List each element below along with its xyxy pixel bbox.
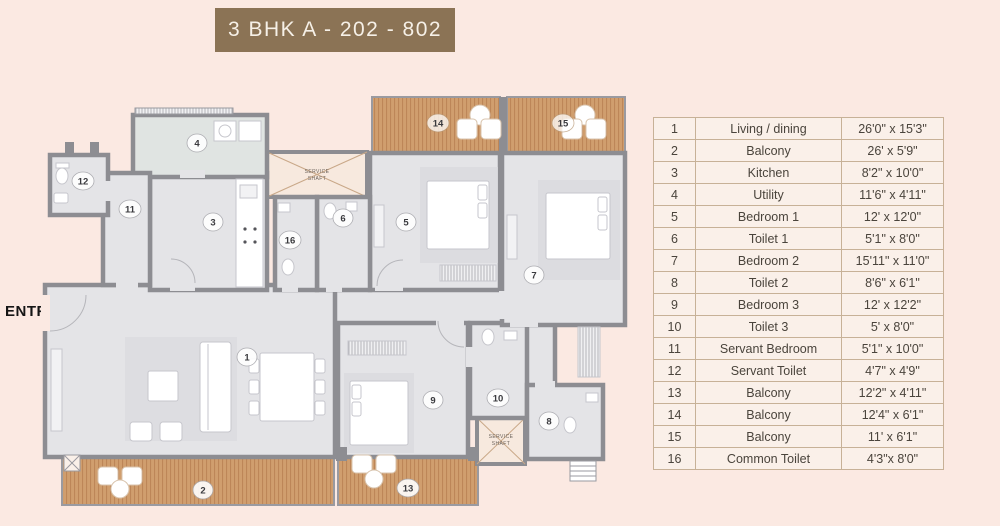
room-size: 4'3"x 8'0" [842,448,944,470]
room-name: Kitchen [696,162,842,184]
table-row: 7Bedroom 215'11" x 11'0" [654,250,944,272]
table-row: 8Toilet 28'6" x 6'1" [654,272,944,294]
floor-plan-drawing: SERVICE SHAFT SERVICE SHAFT 1 2 3 4 5 6 … [30,85,640,515]
room-label-13: 13 [397,479,419,497]
table-row: 4Utility11'6" x 4'11" [654,184,944,206]
table-row: 14Balcony12'4" x 6'1" [654,404,944,426]
room-size: 26'0" x 15'3" [842,118,944,140]
page-title: 3 BHK A - 202 - 802 [228,18,442,42]
svg-text:SERVICE: SERVICE [305,169,330,175]
room-no: 3 [654,162,696,184]
svg-text:9: 9 [430,396,435,407]
utility-counter [239,121,261,141]
room-name: Bedroom 1 [696,206,842,228]
room-no: 13 [654,382,696,404]
table-row: 9Bedroom 312' x 12'2" [654,294,944,316]
table-row: 5Bedroom 112' x 12'0" [654,206,944,228]
room-label-14: 14 [427,114,449,132]
svg-text:15: 15 [558,119,569,130]
room-size: 12'4" x 6'1" [842,404,944,426]
svg-text:7: 7 [531,271,536,282]
room-no: 2 [654,140,696,162]
room-name: Common Toilet [696,448,842,470]
room-name: Bedroom 3 [696,294,842,316]
svg-text:13: 13 [403,484,414,495]
tv-console [51,349,62,431]
table-row: 13Balcony12'2" x 4'11" [654,382,944,404]
svg-text:12: 12 [78,177,89,188]
room-size: 26' x 5'9" [842,140,944,162]
room-size: 4'7" x 4'9" [842,360,944,382]
room-label-4: 4 [187,134,207,152]
svg-text:2: 2 [200,486,205,497]
svg-text:1: 1 [244,353,250,364]
wardrobe [348,341,406,355]
sofa [200,342,231,432]
coffee-table [148,371,178,401]
table-row: 16Common Toilet4'3"x 8'0" [654,448,944,470]
hallway [333,287,505,325]
room-no: 15 [654,426,696,448]
room-name: Toilet 2 [696,272,842,294]
room-no: 5 [654,206,696,228]
room-label-16: 16 [279,231,301,249]
room-no: 7 [654,250,696,272]
room-name: Toilet 3 [696,316,842,338]
table-row: 10Toilet 35' x 8'0" [654,316,944,338]
svg-text:3: 3 [210,218,215,229]
room-name: Living / dining [696,118,842,140]
room-name: Balcony [696,382,842,404]
svg-text:6: 6 [340,214,345,225]
dining-table [260,353,314,421]
room-size: 12'2" x 4'11" [842,382,944,404]
room-size: 5' x 8'0" [842,316,944,338]
wardrobe [578,327,600,377]
room-name: Balcony [696,140,842,162]
room-label-10: 10 [487,389,509,407]
table-row: 1Living / dining26'0" x 15'3" [654,118,944,140]
svg-text:16: 16 [285,236,296,247]
room-size: 5'1" x 10'0" [842,338,944,360]
room-size: 5'1" x 8'0" [842,228,944,250]
room-label-1: 1 [237,348,257,366]
room-label-15: 15 [552,114,574,132]
svg-text:5: 5 [403,218,409,229]
room-label-3: 3 [203,213,223,231]
kitchen-sink [240,185,257,198]
room-name: Servant Bedroom [696,338,842,360]
room-label-12: 12 [72,172,94,190]
table-row: 12Servant Toilet4'7" x 4'9" [654,360,944,382]
room-label-7: 7 [524,266,544,284]
svg-text:SHAFT: SHAFT [492,441,510,447]
room-label-8: 8 [539,412,559,430]
room-name: Bedroom 2 [696,250,842,272]
room-no: 4 [654,184,696,206]
room-no: 1 [654,118,696,140]
floor-plan-page: 3 BHK A - 202 - 802 ENTRY [0,0,1000,526]
title-banner: 3 BHK A - 202 - 802 [215,8,455,52]
svg-text:SERVICE: SERVICE [489,434,514,440]
dresser [374,205,384,247]
room-no: 16 [654,448,696,470]
table-row: 6Toilet 15'1" x 8'0" [654,228,944,250]
room-no: 8 [654,272,696,294]
room-label-5: 5 [396,213,416,231]
svg-text:11: 11 [125,205,136,216]
room-no: 10 [654,316,696,338]
svg-text:8: 8 [546,417,551,428]
room-name: Balcony [696,404,842,426]
wardrobe [440,265,496,281]
svg-text:10: 10 [493,394,504,405]
armchair [130,422,152,441]
room-no: 12 [654,360,696,382]
room-name: Utility [696,184,842,206]
room-no: 9 [654,294,696,316]
washer [214,121,236,141]
table-row: 15Balcony11' x 6'1" [654,426,944,448]
svg-text:SHAFT: SHAFT [308,176,326,182]
dresser [507,215,517,259]
table-row: 11Servant Bedroom5'1" x 10'0" [654,338,944,360]
room-name: Servant Toilet [696,360,842,382]
room-size: 11'6" x 4'11" [842,184,944,206]
room-name: Balcony [696,426,842,448]
room-size: 15'11" x 11'0" [842,250,944,272]
svg-text:4: 4 [194,139,200,150]
floor-plan-svg: SERVICE SHAFT SERVICE SHAFT 1 2 3 4 5 6 … [30,85,640,515]
room-size: 12' x 12'0" [842,206,944,228]
table-row: 2Balcony26' x 5'9" [654,140,944,162]
room-label-11: 11 [119,200,141,218]
table-row: 3Kitchen8'2" x 10'0" [654,162,944,184]
room-label-6: 6 [333,209,353,227]
room-name: Toilet 1 [696,228,842,250]
room-size: 8'2" x 10'0" [842,162,944,184]
room-label-9: 9 [423,391,443,409]
room-no: 11 [654,338,696,360]
room-no: 6 [654,228,696,250]
room-dimensions-table: 1Living / dining26'0" x 15'3" 2Balcony26… [653,117,944,470]
svg-text:14: 14 [433,119,444,130]
room-no: 14 [654,404,696,426]
room-size: 8'6" x 6'1" [842,272,944,294]
armchair [160,422,182,441]
room-size: 12' x 12'2" [842,294,944,316]
room-size: 11' x 6'1" [842,426,944,448]
room-label-2: 2 [193,481,213,499]
